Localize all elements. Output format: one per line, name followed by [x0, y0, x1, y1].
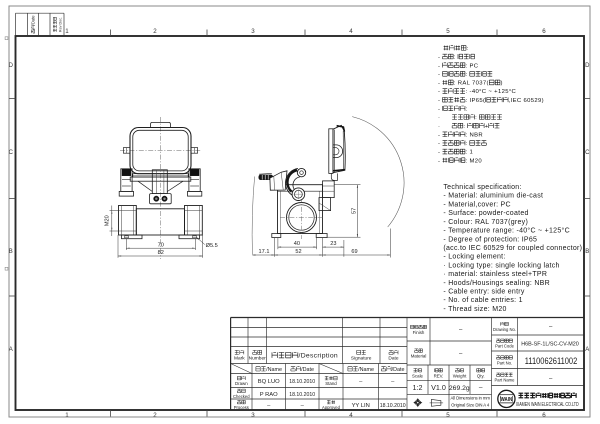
svg-text::: :: [466, 106, 468, 112]
svg-text:-: -: [438, 63, 440, 69]
svg-text:-: -: [438, 141, 440, 147]
svg-text:·: ·: [438, 115, 440, 121]
svg-text:/Date: /Date: [31, 15, 36, 26]
svg-text:- Surface: powder-coated: - Surface: powder-coated: [443, 210, 528, 217]
svg-text:/Date: /Date: [392, 367, 405, 373]
svg-text:YY LIN: YY LIN: [352, 403, 370, 409]
svg-text:(acc.to IEC 60529 for coupled: (acc.to IEC 60529 for coupled connector): [443, 245, 582, 252]
svg-text:,IEC 60529): ,IEC 60529): [509, 98, 544, 104]
svg-text:82: 82: [158, 250, 164, 256]
svg-text:Date: Date: [388, 356, 398, 362]
svg-text:Checked: Checked: [233, 394, 250, 399]
svg-text:: M20: : M20: [466, 158, 483, 164]
svg-text:-: -: [438, 55, 440, 61]
svg-text:BQ LUO: BQ LUO: [258, 379, 280, 385]
svg-text:B: B: [9, 249, 13, 255]
svg-text:REV.: REV.: [434, 373, 444, 378]
svg-text:A: A: [9, 347, 13, 353]
svg-text:18.10.2010: 18.10.2010: [289, 392, 315, 398]
svg-text:+: +: [485, 124, 489, 130]
svg-text:69: 69: [351, 249, 357, 255]
svg-text:1:2: 1:2: [413, 383, 423, 392]
svg-text:WAIN: WAIN: [501, 397, 513, 403]
svg-text:269.2g: 269.2g: [449, 385, 470, 392]
svg-text:6: 6: [542, 28, 546, 35]
svg-text:- Temperature range: -40°C ~ +: - Temperature range: -40°C ~ +125°C: [443, 227, 570, 235]
svg-text:: -40°C ~ +125°C: : -40°C ~ +125°C: [466, 89, 517, 95]
svg-text::: :: [467, 46, 469, 52]
svg-text:Scale: Scale: [412, 373, 424, 378]
svg-text:· material: stainless steel+T: · material: stainless steel+TPR: [443, 271, 547, 278]
svg-text:Mark: Mark: [234, 356, 245, 362]
svg-text:): ): [501, 81, 503, 87]
svg-text:: IP65(: : IP65(: [466, 98, 486, 104]
svg-text:2: 2: [153, 412, 157, 419]
svg-text:Approved: Approved: [322, 405, 341, 410]
svg-text:70: 70: [158, 242, 164, 248]
svg-text:-: -: [438, 89, 440, 95]
svg-text::: :: [466, 141, 468, 147]
svg-text:/Date: /Date: [301, 367, 314, 373]
svg-text:23: 23: [330, 241, 336, 247]
svg-text:A: A: [585, 347, 589, 353]
svg-text:52: 52: [295, 249, 301, 255]
svg-text:Drawn: Drawn: [235, 381, 248, 386]
svg-text:5: 5: [446, 28, 450, 35]
svg-text:- Thread size: M20: - Thread size: M20: [443, 306, 506, 313]
svg-text:-: -: [438, 106, 440, 112]
svg-text:3: 3: [251, 28, 255, 35]
svg-text:4: 4: [349, 28, 353, 35]
svg-text::: :: [475, 115, 477, 121]
svg-text:: 1: : 1: [466, 150, 474, 156]
svg-text:/Name: /Name: [266, 367, 282, 373]
svg-text:Part No.: Part No.: [497, 360, 512, 365]
svg-text:D: D: [585, 63, 590, 69]
svg-text:: PC: : PC: [466, 63, 479, 69]
svg-text:1: 1: [65, 412, 69, 419]
svg-text:- Degree of protection: IP65: - Degree of protection: IP65: [443, 236, 537, 243]
svg-text:V1.0: V1.0: [431, 383, 446, 392]
svg-text:17.1: 17.1: [259, 249, 270, 255]
svg-text:- Material: aluminium die-cast: - Material: aluminium die-cast: [443, 193, 543, 200]
svg-text:Rev Doc.: Rev Doc.: [58, 17, 62, 32]
svg-text:18.10.2010: 18.10.2010: [380, 403, 406, 409]
svg-text:-: -: [438, 81, 440, 87]
svg-text:Technical specification:: Technical specification:: [443, 184, 521, 191]
svg-text:M20: M20: [105, 215, 111, 226]
svg-text:- Locking element:: - Locking element:: [443, 254, 505, 261]
svg-text:/Name: /Name: [358, 367, 374, 373]
svg-text:/Description: /Description: [299, 353, 339, 360]
svg-text:Signature: Signature: [351, 356, 372, 362]
svg-text:H6B-SF-1L/SC-CV-M20: H6B-SF-1L/SC-CV-M20: [521, 341, 579, 347]
svg-text:P RAO: P RAO: [260, 392, 278, 398]
svg-text:XIAMEN WAIN ELECTRICAL CO.LTD: XIAMEN WAIN ELECTRICAL CO.LTD: [516, 402, 579, 408]
svg-text:1: 1: [65, 28, 69, 35]
svg-text:-: -: [438, 158, 440, 164]
svg-text::: :: [466, 72, 468, 78]
svg-text:Part Name: Part Name: [494, 378, 515, 383]
svg-text:·: ·: [438, 124, 440, 130]
svg-text:- Hoods/Housings sealing: NBR: - Hoods/Housings sealing: NBR: [443, 280, 550, 287]
svg-text:C: C: [9, 150, 14, 156]
svg-text:40: 40: [294, 241, 300, 247]
svg-text::: :: [454, 55, 456, 61]
svg-text:Qty.: Qty.: [477, 373, 485, 378]
svg-text:Ø5.5: Ø5.5: [206, 243, 218, 249]
svg-text:: RAL 7037(: : RAL 7037(: [454, 81, 489, 87]
svg-text:-: -: [438, 72, 440, 78]
svg-text:C: C: [585, 150, 590, 156]
svg-text:18.10.2010: 18.10.2010: [289, 379, 315, 385]
svg-text:B: B: [585, 249, 589, 255]
svg-text::: :: [463, 124, 465, 130]
svg-text:57: 57: [352, 208, 358, 214]
svg-text:All Dimensions in mm: All Dimensions in mm: [451, 395, 491, 400]
svg-text:4: 4: [349, 412, 353, 419]
svg-text:Original Size DIN A 4: Original Size DIN A 4: [451, 402, 490, 407]
svg-text:–: –: [479, 385, 483, 392]
svg-text:3: 3: [251, 412, 255, 419]
svg-text:- Material,cover: PC: - Material,cover: PC: [443, 201, 510, 208]
svg-text:1110062611002: 1110062611002: [525, 356, 578, 367]
svg-text:-: -: [438, 132, 440, 138]
svg-text:- Cable entry: side entry: - Cable entry: side entry: [443, 289, 525, 296]
svg-text:- Colour: RAL 7037(grey): - Colour: RAL 7037(grey): [443, 219, 528, 226]
svg-text:Finish: Finish: [413, 330, 425, 335]
svg-text:6: 6: [542, 412, 546, 419]
svg-text:-: -: [438, 150, 440, 156]
svg-text:Weight: Weight: [453, 373, 467, 378]
svg-text:Process: Process: [234, 405, 249, 410]
svg-text:2: 2: [153, 28, 157, 35]
svg-text:Part Code: Part Code: [495, 344, 515, 349]
svg-text:· Locking type: single lockin: · Locking type: single locking latch: [443, 262, 559, 269]
svg-text:Drawing No.: Drawing No.: [493, 327, 516, 332]
svg-text:-: -: [438, 98, 440, 104]
svg-text:Stand: Stand: [325, 381, 337, 386]
svg-text:: NBR: : NBR: [466, 132, 483, 138]
svg-text:Number: Number: [249, 356, 266, 362]
svg-text:- No. of cable entries: 1: - No. of cable entries: 1: [443, 297, 522, 304]
svg-text:D: D: [9, 63, 14, 69]
svg-text:Material: Material: [411, 354, 427, 359]
svg-text:5: 5: [446, 412, 450, 419]
